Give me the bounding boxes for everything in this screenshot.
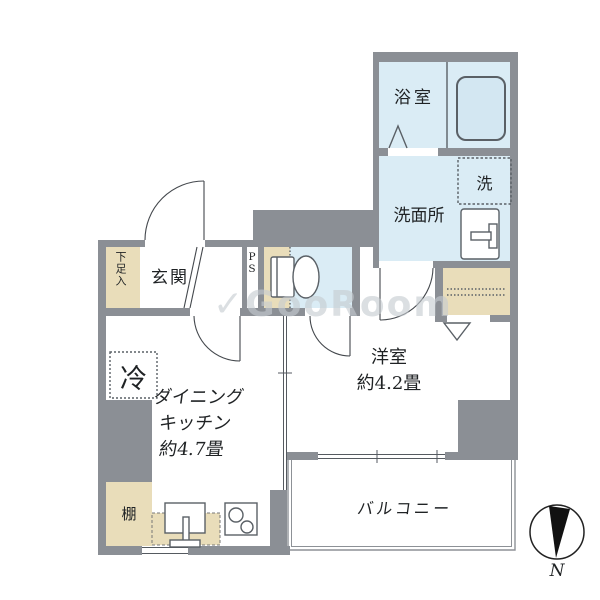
shelf-label: 棚 [106, 503, 152, 524]
wall [106, 308, 190, 316]
wall [373, 52, 518, 62]
western-room-label: 洋室 約4.2畳 [330, 345, 448, 397]
compass [530, 505, 584, 559]
wall [490, 315, 518, 322]
dining-kitchen-size: 約4.7畳 [110, 437, 274, 463]
watermark: ✓GooRoom [213, 284, 453, 325]
floor-plan: 浴室 洗 洗面所 玄関 下足入 PS 冷 ダイニング キッチン 約4.7畳 洋室… [0, 0, 600, 600]
western-room-name: 洋室 [330, 345, 448, 371]
wall [287, 452, 318, 460]
wall [445, 452, 458, 460]
entrance-door-arc [145, 181, 204, 240]
wall [458, 400, 518, 460]
balcony-label: バルコニー [338, 495, 471, 519]
washer-space-label: 洗 [458, 170, 511, 194]
entrance-label: 玄関 [139, 263, 201, 288]
wall [433, 261, 518, 268]
vanity-faucet-arm [471, 232, 491, 240]
wall [378, 148, 388, 156]
wall [510, 52, 518, 408]
bathtub [457, 77, 505, 140]
wall [98, 546, 142, 555]
bath-label: 浴室 [379, 83, 449, 108]
wall [438, 148, 511, 156]
wall [253, 210, 378, 247]
wall [98, 240, 106, 555]
washroom-label: 洗面所 [377, 201, 461, 226]
shoe-storage-label: 下足入 [112, 251, 128, 309]
wall [188, 546, 290, 555]
closet-folding-door-icon [444, 323, 470, 340]
kitchen-faucet-base [170, 540, 200, 547]
compass-north-label: N [540, 561, 574, 581]
dining-kitchen-label: ダイニング キッチン 約4.7畳 [110, 385, 281, 463]
dining-kitchen-name-line1: ダイニング [117, 385, 281, 411]
kitchen-faucet [183, 517, 189, 543]
wall [205, 240, 253, 247]
closet-floor [443, 268, 510, 315]
western-room-size: 約4.2畳 [330, 371, 448, 397]
wall [373, 261, 379, 268]
watermark-logo-icon: ✓ [213, 284, 245, 325]
watermark-text: GooRoom [245, 284, 453, 325]
wall [270, 490, 287, 546]
dining-kitchen-name-line2: キッチン [113, 411, 277, 437]
